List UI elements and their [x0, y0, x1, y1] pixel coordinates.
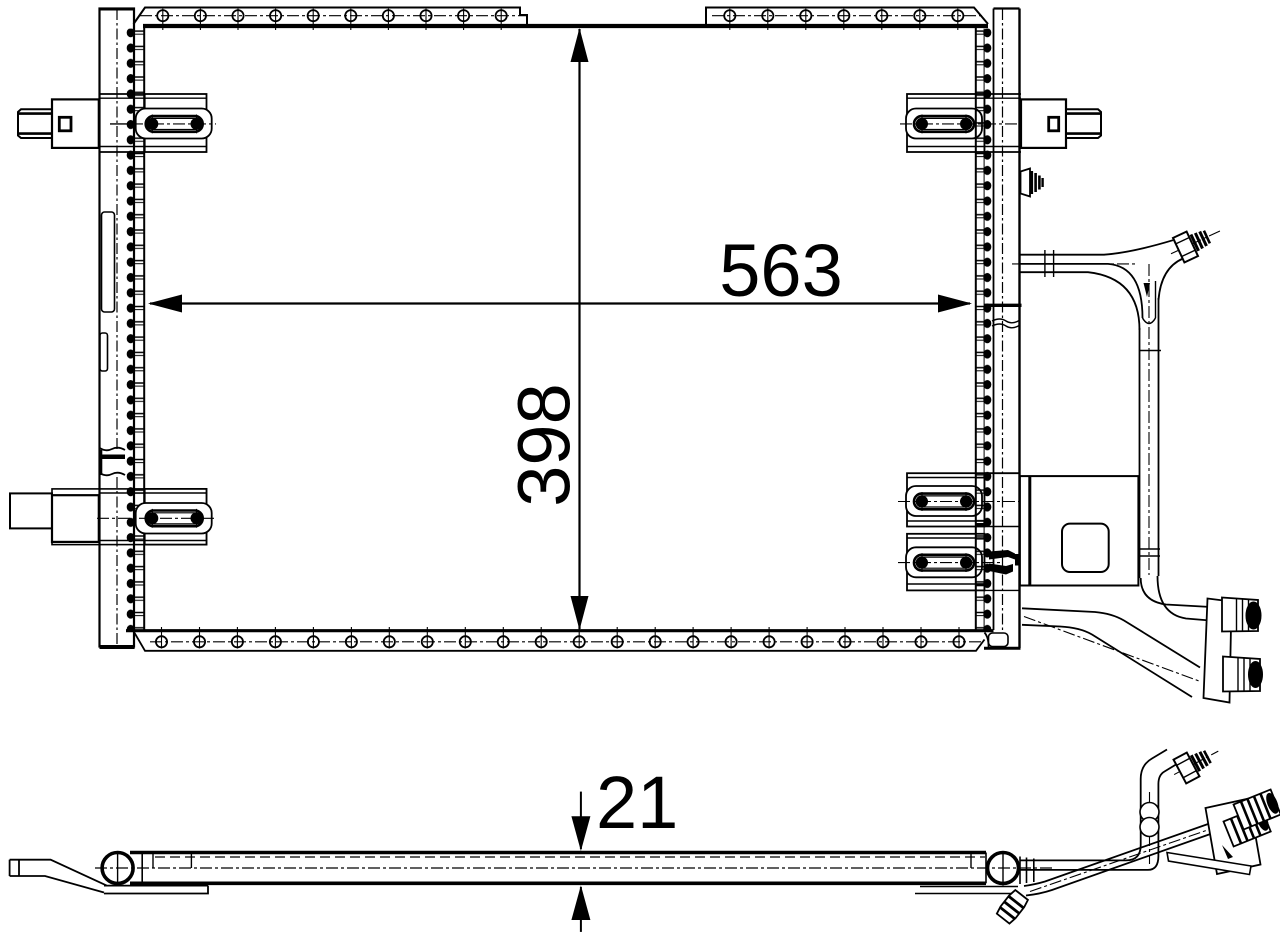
- svg-text:563: 563: [719, 229, 842, 312]
- svg-text:21: 21: [596, 761, 678, 844]
- svg-text:398: 398: [503, 383, 586, 506]
